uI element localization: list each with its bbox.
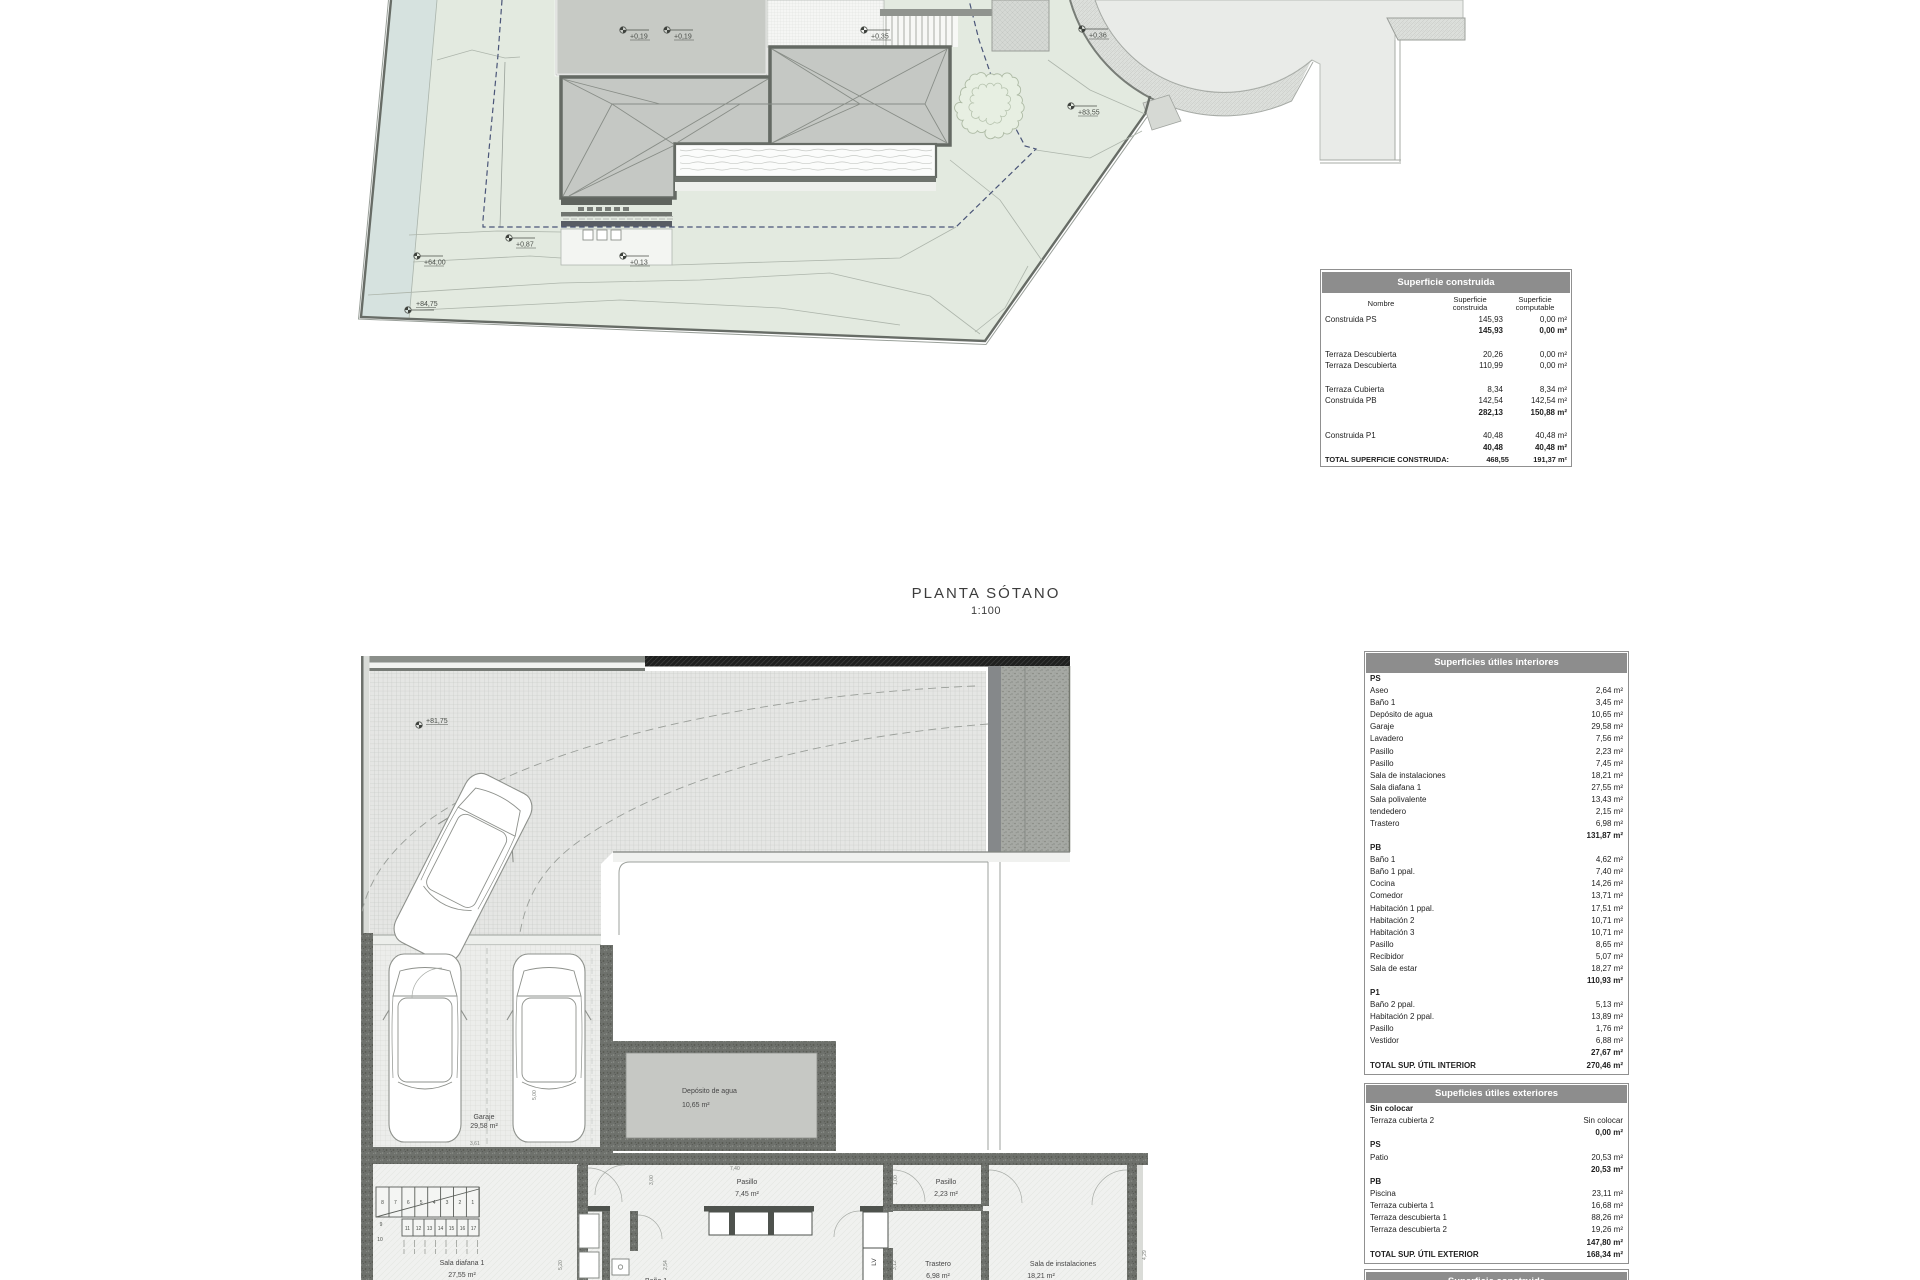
svg-text:Pasillo: Pasillo: [737, 1179, 758, 1186]
svg-text:2: 2: [459, 1200, 462, 1206]
svg-text:+0,35: +0,35: [871, 34, 889, 41]
svg-text:17: 17: [471, 1226, 477, 1232]
svg-text:6,98 m²: 6,98 m²: [926, 1273, 950, 1280]
svg-text:27,55 m²: 27,55 m²: [448, 1272, 476, 1279]
svg-text:+83,55: +83,55: [1078, 110, 1100, 117]
svg-text:7,40: 7,40: [730, 1166, 740, 1172]
svg-text:7: 7: [394, 1200, 397, 1206]
svg-text:5,20: 5,20: [558, 1260, 564, 1270]
svg-text:6: 6: [407, 1200, 410, 1206]
svg-text:Trastero: Trastero: [925, 1261, 951, 1268]
svg-text:+0,87: +0,87: [516, 242, 534, 249]
svg-text:3,12: 3,12: [892, 1260, 898, 1270]
svg-text:3,61: 3,61: [470, 1141, 480, 1147]
svg-text:1: 1: [471, 1200, 474, 1206]
svg-text:+81,75: +81,75: [426, 718, 448, 725]
svg-text:8: 8: [381, 1200, 384, 1206]
svg-text:7,45 m²: 7,45 m²: [735, 1191, 759, 1198]
svg-text:2,23 m²: 2,23 m²: [934, 1191, 958, 1198]
svg-text:+64,00: +64,00: [424, 260, 446, 267]
svg-text:15: 15: [449, 1226, 455, 1232]
svg-text:16: 16: [460, 1226, 466, 1232]
svg-text:9: 9: [380, 1222, 383, 1228]
svg-text:+0,13: +0,13: [630, 260, 648, 267]
svg-text:PLANTA SÓTANO: PLANTA SÓTANO: [912, 585, 1061, 602]
svg-text:10: 10: [377, 1237, 383, 1243]
svg-text:2,54: 2,54: [663, 1260, 669, 1270]
svg-text:12: 12: [416, 1226, 422, 1232]
svg-text:Sala de instalaciones: Sala de instalaciones: [1030, 1261, 1097, 1268]
svg-text:Sala diafana 1: Sala diafana 1: [440, 1260, 485, 1267]
svg-text:11: 11: [405, 1226, 410, 1232]
svg-text:3,00: 3,00: [649, 1175, 655, 1185]
svg-text:10,65 m²: 10,65 m²: [682, 1102, 710, 1109]
svg-text:1:100: 1:100: [971, 605, 1001, 617]
svg-text:4,29: 4,29: [1142, 1250, 1148, 1260]
svg-text:+0,19: +0,19: [630, 34, 648, 41]
svg-text:LV: LV: [871, 1258, 878, 1266]
svg-text:1,00: 1,00: [893, 1175, 899, 1185]
svg-text:+0,19: +0,19: [674, 34, 692, 41]
svg-text:+0,36: +0,36: [1089, 33, 1107, 40]
svg-text:3: 3: [446, 1200, 449, 1206]
svg-text:Pasillo: Pasillo: [936, 1179, 957, 1186]
svg-text:14: 14: [438, 1226, 444, 1232]
svg-text:5,00: 5,00: [532, 1090, 538, 1100]
svg-text:4: 4: [433, 1200, 436, 1206]
svg-text:29,58 m²: 29,58 m²: [470, 1123, 498, 1130]
svg-text:Depósito de agua: Depósito de agua: [682, 1088, 737, 1095]
svg-text:+84,75: +84,75: [416, 301, 438, 308]
svg-text:5: 5: [420, 1200, 423, 1206]
svg-text:Garaje: Garaje: [473, 1114, 494, 1121]
svg-text:18,21 m²: 18,21 m²: [1027, 1273, 1055, 1280]
svg-text:13: 13: [427, 1226, 433, 1232]
